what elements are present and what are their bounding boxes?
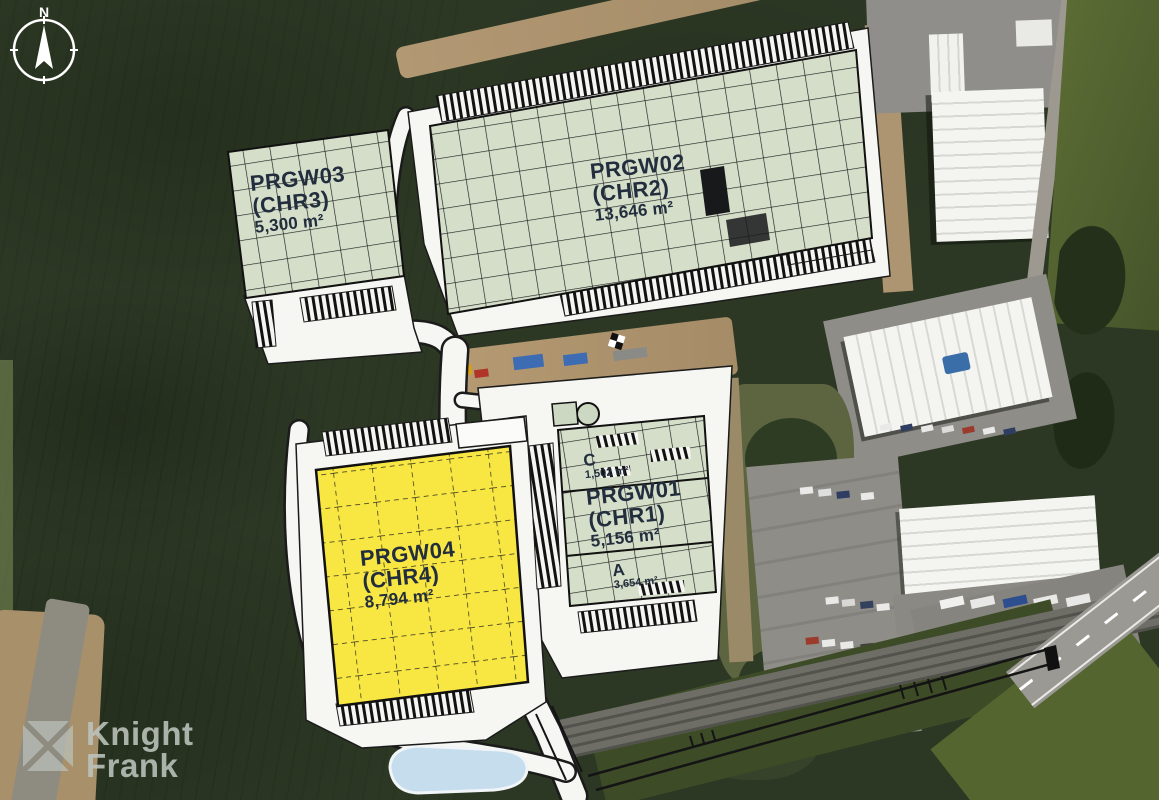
survey-marker-icon	[608, 332, 626, 350]
knight-frank-logo: Knight Frank	[20, 718, 193, 783]
prgw01-unit-c-label: C 1,502 m²	[583, 448, 630, 482]
pump-pad	[552, 402, 578, 426]
knight-frank-icon	[20, 718, 76, 774]
plan-overlay	[0, 0, 1159, 800]
prgw01-label: PRGW01 (CHR1) 5,156 m²	[585, 477, 686, 550]
retention-pond	[390, 746, 527, 793]
prgw04-label: PRGW04 (CHR4) 8,794 m²	[359, 538, 460, 611]
knight-frank-wordmark-line1: Knight	[86, 718, 193, 750]
prgw03-label: PRGW03 (CHR3) 5,300 m²	[249, 163, 350, 236]
compass-needle-icon	[35, 25, 53, 69]
aerial-site-plan-map: PRGW03 (CHR3) 5,300 m² PRGW02 (CHR2) 13,…	[0, 0, 1159, 800]
prgw02-label: PRGW02 (CHR2) 13,646 m²	[589, 151, 690, 224]
prgw01-unit-a-label: A 3,654 m²	[612, 558, 659, 592]
retention-tank	[577, 403, 599, 425]
compass: N	[2, 2, 86, 86]
knight-frank-wordmark-line2: Frank	[86, 750, 193, 782]
